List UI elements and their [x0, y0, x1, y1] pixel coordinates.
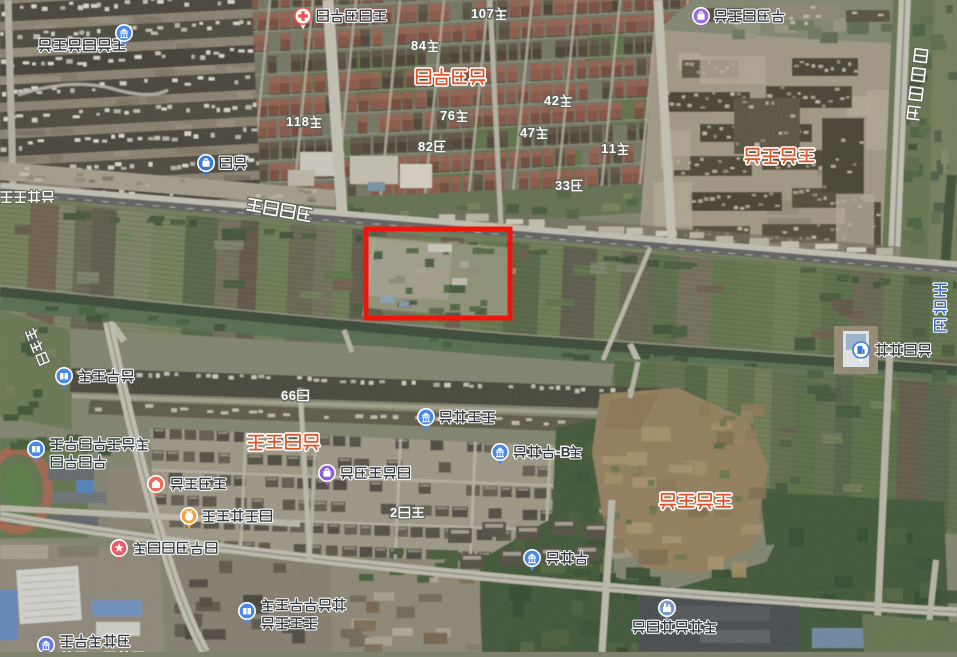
- svg-text:0: 0: [479, 6, 486, 21]
- svg-text:2: 2: [426, 139, 433, 154]
- svg-text:4: 4: [544, 93, 552, 108]
- svg-text:B: B: [561, 445, 571, 460]
- svg-text:4: 4: [520, 125, 528, 140]
- svg-text:2: 2: [552, 93, 559, 108]
- svg-text:1: 1: [294, 114, 301, 129]
- svg-text:8: 8: [411, 38, 418, 53]
- svg-text:6: 6: [281, 388, 288, 403]
- svg-text:8: 8: [418, 139, 425, 154]
- svg-text:2: 2: [390, 505, 397, 520]
- svg-text:7: 7: [440, 108, 447, 123]
- svg-text:1: 1: [609, 141, 616, 156]
- svg-text:1: 1: [601, 141, 608, 156]
- svg-text:6: 6: [289, 388, 296, 403]
- svg-text:6: 6: [448, 108, 455, 123]
- svg-text:3: 3: [555, 178, 562, 193]
- svg-text:7: 7: [487, 6, 494, 21]
- svg-text:8: 8: [302, 114, 309, 129]
- svg-text:1: 1: [286, 114, 293, 129]
- svg-text:4: 4: [419, 38, 427, 53]
- svg-text:7: 7: [528, 125, 535, 140]
- svg-text:1: 1: [471, 6, 478, 21]
- svg-text:3: 3: [563, 178, 570, 193]
